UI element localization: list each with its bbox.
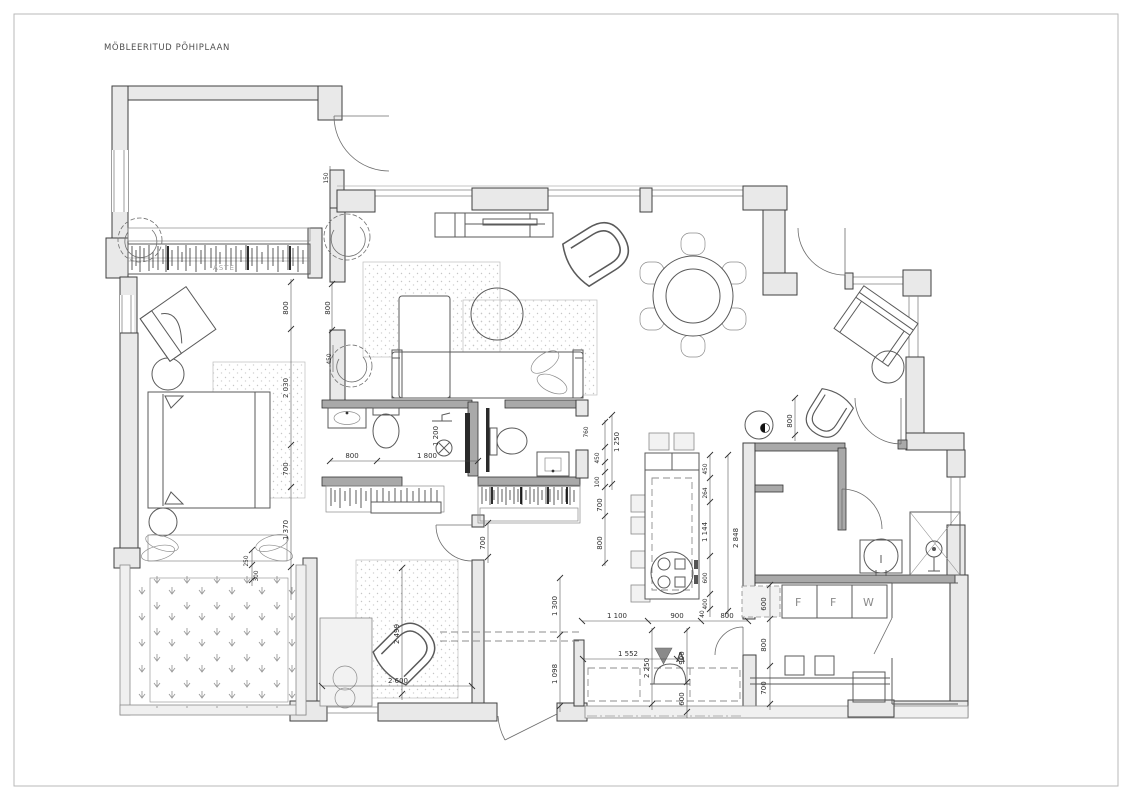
dim-label: 450 <box>595 452 601 463</box>
island <box>645 453 699 599</box>
dim-label: 450 <box>327 353 333 364</box>
dim-label: 800 <box>282 301 290 314</box>
shower-room-door <box>842 489 882 529</box>
dim-label: 700 <box>282 462 290 475</box>
dim-label: 1 800 <box>417 452 437 460</box>
closet-right <box>478 485 580 523</box>
toilet-bowl <box>373 414 399 448</box>
dim-label: 1 100 <box>607 612 627 620</box>
armchair-square <box>834 286 918 366</box>
kitchen <box>631 433 699 602</box>
dresser <box>320 618 372 706</box>
stool <box>649 433 669 450</box>
dim-label: 700 <box>760 681 768 694</box>
desk-nook <box>745 286 918 443</box>
balcony-door-top-right <box>798 228 845 275</box>
dim-label: 250 <box>244 555 250 566</box>
floor-plan-page: MÖBLEERITUD PÕHIPLAAN <box>0 0 1132 800</box>
washer-label: W <box>863 596 874 609</box>
dim-label: 600 <box>760 597 768 610</box>
toilet-bowl <box>497 428 527 454</box>
dim-label: 800 <box>786 414 794 427</box>
dim-label: 2 848 <box>732 528 740 548</box>
dim-label: 760 <box>584 426 590 437</box>
dim-label: 600 <box>703 572 709 583</box>
dim-label: 1 552 <box>618 650 638 658</box>
dim-label: 264 <box>703 487 709 498</box>
dim-label: 1 250 <box>613 432 621 452</box>
desk-chair <box>800 385 855 443</box>
dining-set <box>640 233 746 357</box>
bedroom2-door <box>436 525 472 561</box>
dim-label: 800 <box>324 301 332 314</box>
dim-label: 800 <box>720 612 733 620</box>
utility-rooms: F F W <box>742 512 960 702</box>
dim-label: 1 098 <box>551 664 559 684</box>
bed <box>148 392 270 508</box>
dim-label: 900 <box>678 651 686 664</box>
utility-sink <box>860 539 902 576</box>
loggia-door <box>334 116 389 171</box>
living-room <box>363 213 636 398</box>
dim-label: 700 <box>596 498 604 511</box>
dim-label: 700 <box>479 536 487 549</box>
dim-label: 2 499 <box>393 624 401 644</box>
dim-label: 40 <box>700 610 706 618</box>
dim-label: 100 <box>595 476 601 487</box>
freezer-label: F <box>830 596 836 609</box>
dim-label: 1 144 <box>701 521 709 542</box>
floor-plan-drawing: MÖBLEERITUD PÕHIPLAAN <box>0 0 1132 800</box>
closet-left <box>326 486 444 513</box>
round-table-lamp <box>745 411 773 439</box>
hall-door <box>715 627 743 655</box>
dim-label: 450 <box>703 463 709 474</box>
console-arch <box>650 664 690 684</box>
fridge-label: F <box>795 596 801 609</box>
dim-label: 800 <box>596 536 604 549</box>
dim-label: 400 <box>703 598 709 609</box>
entry-counter <box>750 656 890 702</box>
dining-table <box>653 256 733 336</box>
dim-label: 2 250 <box>643 658 651 678</box>
nightstand-top <box>152 358 184 390</box>
dim-label: 800 <box>760 638 768 651</box>
bathroom-2 <box>486 408 569 476</box>
plan-title: MÖBLEERITUD PÕHIPLAAN <box>104 41 230 53</box>
wardrobe-label: ASTE <box>213 264 235 272</box>
utility-door <box>855 398 901 444</box>
stool <box>674 433 694 450</box>
dim-label: 2 030 <box>282 378 290 398</box>
dim-label: 300 <box>254 570 260 581</box>
tv-console <box>435 213 553 237</box>
bedroom-armchair <box>140 287 216 362</box>
dim-label: 800 <box>345 452 358 460</box>
nightstand-bottom <box>149 508 177 536</box>
bedroom <box>140 287 305 564</box>
dim-label: 1 300 <box>551 596 559 616</box>
dim-label: 2 600 <box>388 677 408 685</box>
bedroom-bench <box>140 531 294 564</box>
dim-label: 1 200 <box>432 426 440 446</box>
dim-label: 150 <box>324 172 330 183</box>
dim-label: 1 370 <box>282 520 290 540</box>
living-armchair <box>558 215 636 290</box>
shower-glass <box>465 413 470 473</box>
shower-arm <box>432 413 452 421</box>
bathroom-1 <box>328 408 470 473</box>
dim-label: 900 <box>670 612 683 620</box>
balcony <box>120 565 306 715</box>
dim-label: 600 <box>678 692 686 705</box>
entry-door <box>498 714 557 740</box>
toilet-tank <box>490 428 497 455</box>
